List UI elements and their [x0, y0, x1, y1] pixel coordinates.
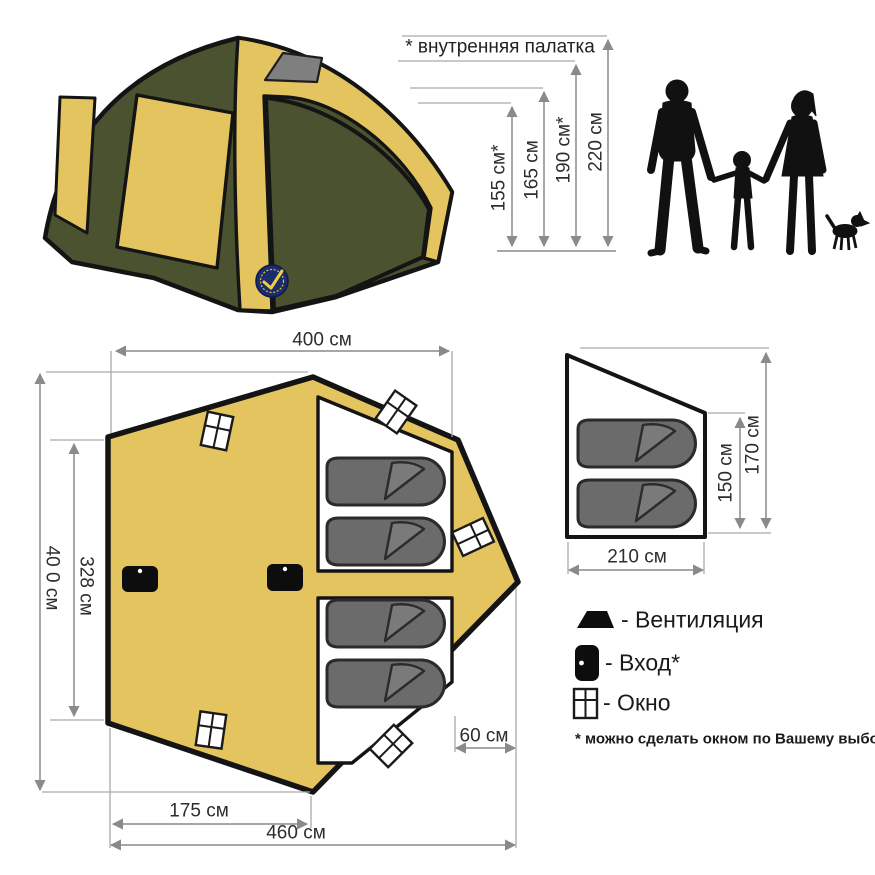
sleeping-bag [327, 660, 444, 707]
entrance-icon [575, 645, 599, 681]
height-155: 155 см* [490, 145, 509, 212]
dog-silhouette [827, 212, 869, 250]
entrance-icon [267, 564, 303, 591]
height-165: 165 см [523, 140, 542, 200]
family-silhouette [651, 80, 869, 253]
sleeping-bag [327, 518, 444, 565]
sleeping-bag [578, 420, 695, 467]
entrance-icon [122, 566, 158, 592]
plan-inner-height: 328 см [77, 556, 96, 616]
plan-total-width: 460 см [266, 824, 326, 843]
plan-left-height: 40 0 см [43, 546, 62, 611]
brand-logo [256, 265, 288, 297]
tent-illustration [45, 38, 452, 312]
sleeping-bag [578, 480, 695, 527]
section-width: 210 см [607, 548, 667, 567]
window-icon [196, 711, 226, 748]
section-height: 170 см [744, 415, 763, 475]
floor-plan [108, 377, 518, 792]
vent-icon [577, 611, 614, 628]
inner-tent-section [567, 348, 771, 574]
legend-vent-label: - Вентиляция [621, 607, 764, 634]
window-icon [201, 412, 234, 451]
height-190: 190 см* [555, 117, 574, 184]
sleeping-bag [327, 600, 444, 647]
plan-front-width: 175 см [169, 802, 229, 821]
legend-window-label: - Окно [603, 690, 671, 717]
plan-porch-depth: 60 см [460, 727, 509, 746]
section-inner-height: 150 см [717, 443, 736, 503]
window-icon [574, 689, 597, 718]
sleeping-bag [327, 458, 444, 505]
tent-spec-diagram: * внутренняя палатка 155 см* 165 см 190 … [0, 0, 875, 875]
legend-door-label: - Вход* [605, 650, 680, 677]
inner-tent-note: * внутренняя палатка [405, 38, 595, 57]
legend-footnote: * можно сделать окном по Вашему выбору [575, 731, 875, 748]
plan-top-width: 400 см [292, 331, 352, 350]
height-220: 220 см [587, 112, 606, 172]
